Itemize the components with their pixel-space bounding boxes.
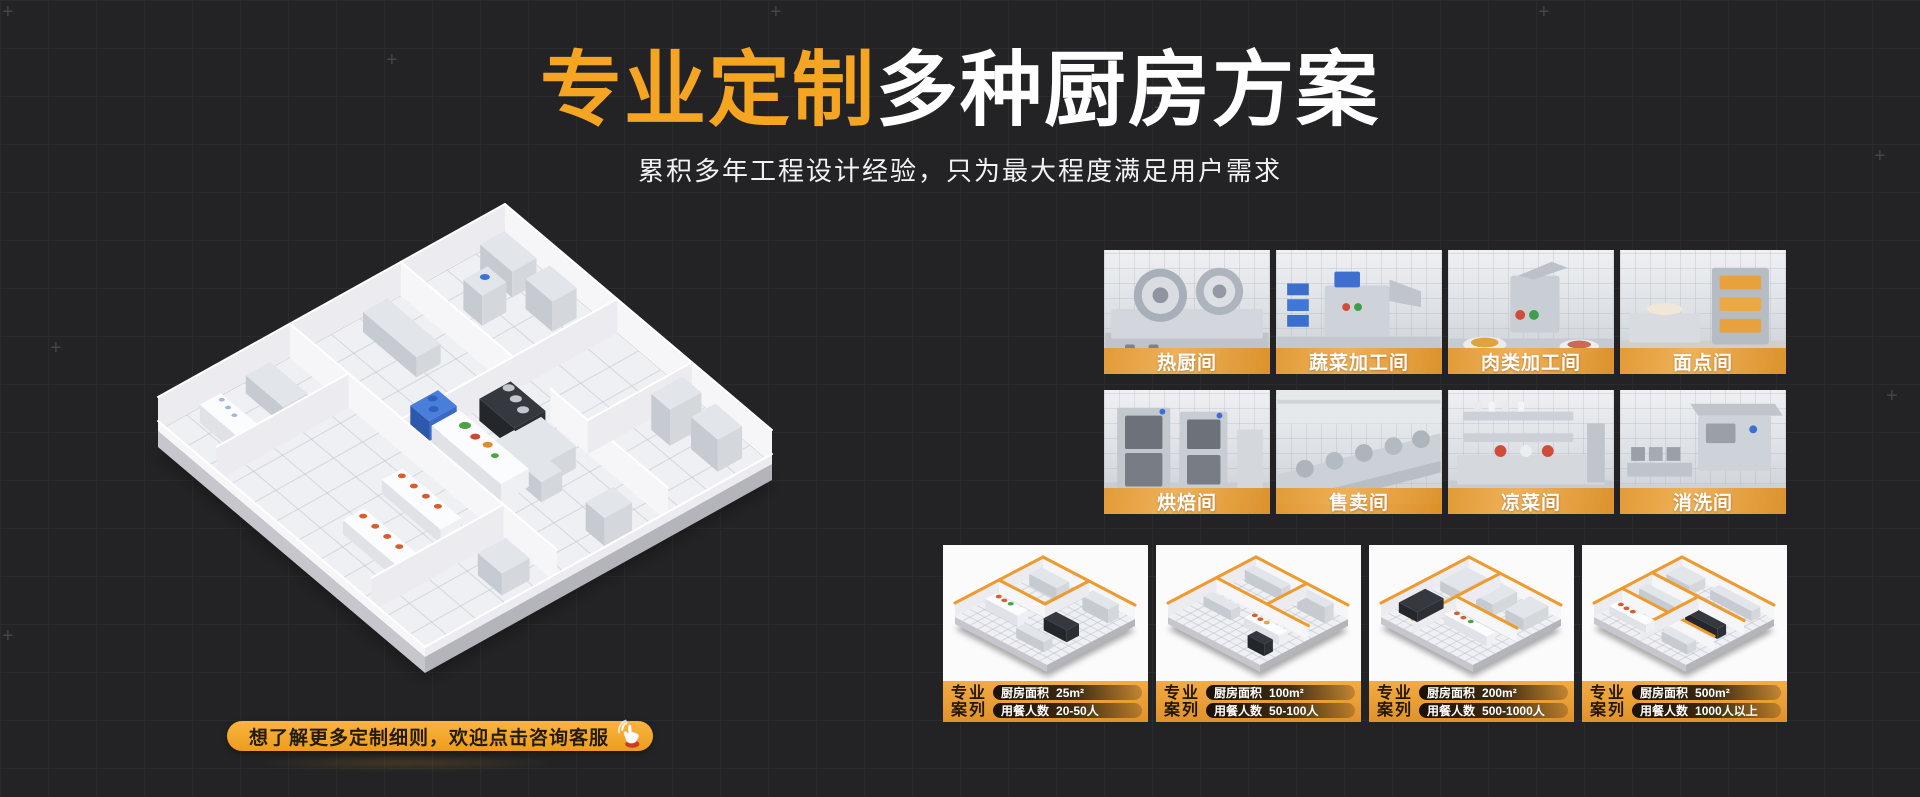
- badge-line: 案列: [1377, 702, 1413, 719]
- plus-icon: +: [2, 626, 14, 646]
- area-label: 厨房面积: [1640, 684, 1688, 701]
- area-value: 500m²: [1695, 686, 1730, 700]
- area-value: 200m²: [1482, 686, 1517, 700]
- room-tile-baking: 烘焙间: [1104, 390, 1270, 514]
- room-tile-serving: 售卖间: [1276, 390, 1442, 514]
- badge-line: 专业: [1377, 685, 1413, 702]
- case-badge: 专业案列: [951, 685, 987, 719]
- case-diners: 用餐人数50-100人: [1206, 703, 1355, 718]
- title-rest: 多种厨房方案: [876, 45, 1380, 136]
- hero-header: 专业定制多种厨房方案 累积多年工程设计经验，只为最大程度满足用户需求: [0, 48, 1920, 188]
- room-label: 烘焙间: [1104, 488, 1270, 514]
- case-photo: [943, 545, 1148, 681]
- kitchen-floorplan-illustration: [140, 192, 800, 692]
- case-photo: [1582, 545, 1787, 681]
- room-tile-cold-dishes: 凉菜间: [1448, 390, 1614, 514]
- badge-line: 案列: [1164, 702, 1200, 719]
- room-tile-dishwashing: 消洗间: [1620, 390, 1786, 514]
- area-label: 厨房面积: [1427, 684, 1475, 701]
- case-card-25m2: 专业案列 厨房面积25m² 用餐人数20-50人: [943, 545, 1148, 722]
- room-label: 售卖间: [1276, 488, 1442, 514]
- room-label: 凉菜间: [1448, 488, 1614, 514]
- room-tile-pastry: 面点间: [1620, 250, 1786, 374]
- case-photo: [1369, 545, 1574, 681]
- case-area: 厨房面积25m²: [993, 685, 1142, 700]
- room-label: 消洗间: [1620, 488, 1786, 514]
- room-tile-vegetable-processing: 蔬菜加工间: [1276, 250, 1442, 374]
- cta-label: 想了解更多定制细则，欢迎点击咨询客服: [249, 723, 609, 750]
- case-diners: 用餐人数20-50人: [993, 703, 1142, 718]
- case-info-band: 专业案列 厨房面积200m² 用餐人数500-1000人: [1369, 681, 1574, 722]
- consult-cta-button[interactable]: 想了解更多定制细则，欢迎点击咨询客服: [227, 721, 653, 751]
- page-title: 专业定制多种厨房方案: [0, 48, 1920, 135]
- diners-value: 1000人以上: [1695, 702, 1758, 719]
- plus-icon: +: [1886, 386, 1898, 406]
- plus-icon: +: [770, 2, 782, 22]
- kitchen-solutions-banner: + + + + + + + + + + 专业定制多种厨房方案 累积多年工程设计经…: [0, 0, 1920, 797]
- case-card-200m2: 专业案列 厨房面积200m² 用餐人数500-1000人: [1369, 545, 1574, 722]
- room-tile-hot-kitchen: 热厨间: [1104, 250, 1270, 374]
- room-label: 面点间: [1620, 348, 1786, 374]
- badge-line: 案列: [1590, 702, 1626, 719]
- diners-value: 20-50人: [1056, 702, 1099, 719]
- cta-reflection: [247, 756, 567, 770]
- diners-label: 用餐人数: [1001, 702, 1049, 719]
- area-value: 100m²: [1269, 686, 1304, 700]
- badge-line: 专业: [951, 685, 987, 702]
- room-label: 肉类加工间: [1448, 348, 1614, 374]
- case-area: 厨房面积200m²: [1419, 685, 1568, 700]
- diners-label: 用餐人数: [1214, 702, 1262, 719]
- plus-icon: +: [50, 338, 62, 358]
- case-info-band: 专业案列 厨房面积100m² 用餐人数50-100人: [1156, 681, 1361, 722]
- room-label: 蔬菜加工间: [1276, 348, 1442, 374]
- page-subtitle: 累积多年工程设计经验，只为最大程度满足用户需求: [0, 151, 1920, 188]
- badge-line: 案列: [951, 702, 987, 719]
- area-label: 厨房面积: [1214, 684, 1262, 701]
- plus-icon: +: [1538, 2, 1550, 22]
- area-label: 厨房面积: [1001, 684, 1049, 701]
- diners-value: 50-100人: [1269, 702, 1318, 719]
- case-area: 厨房面积100m²: [1206, 685, 1355, 700]
- room-tile-meat-processing: 肉类加工间: [1448, 250, 1614, 374]
- case-diners: 用餐人数1000人以上: [1632, 703, 1781, 718]
- case-photo: [1156, 545, 1361, 681]
- case-badge: 专业案列: [1590, 685, 1626, 719]
- diners-value: 500-1000人: [1482, 702, 1545, 719]
- badge-line: 专业: [1590, 685, 1626, 702]
- diners-label: 用餐人数: [1427, 702, 1475, 719]
- room-label: 热厨间: [1104, 348, 1270, 374]
- case-gallery: 专业案列 厨房面积25m² 用餐人数20-50人 专业案列 厨房面积100m² …: [943, 545, 1787, 722]
- room-type-gallery: 热厨间 蔬菜加工间 肉类加工间 面点间 烘焙间: [1104, 250, 1786, 514]
- title-highlight: 专业定制: [540, 45, 876, 136]
- badge-line: 专业: [1164, 685, 1200, 702]
- case-diners: 用餐人数500-1000人: [1419, 703, 1568, 718]
- plus-icon: +: [2, 2, 14, 22]
- case-area: 厨房面积500m²: [1632, 685, 1781, 700]
- case-info-band: 专业案列 厨房面积25m² 用餐人数20-50人: [943, 681, 1148, 722]
- diners-label: 用餐人数: [1640, 702, 1688, 719]
- case-card-500m2: 专业案列 厨房面积500m² 用餐人数1000人以上: [1582, 545, 1787, 722]
- case-card-100m2: 专业案列 厨房面积100m² 用餐人数50-100人: [1156, 545, 1361, 722]
- case-badge: 专业案列: [1164, 685, 1200, 719]
- floorplan-3d-render: [140, 192, 800, 692]
- case-badge: 专业案列: [1377, 685, 1413, 719]
- area-value: 25m²: [1056, 686, 1084, 700]
- case-info-band: 专业案列 厨房面积500m² 用餐人数1000人以上: [1582, 681, 1787, 722]
- click-hand-icon: [613, 719, 645, 749]
